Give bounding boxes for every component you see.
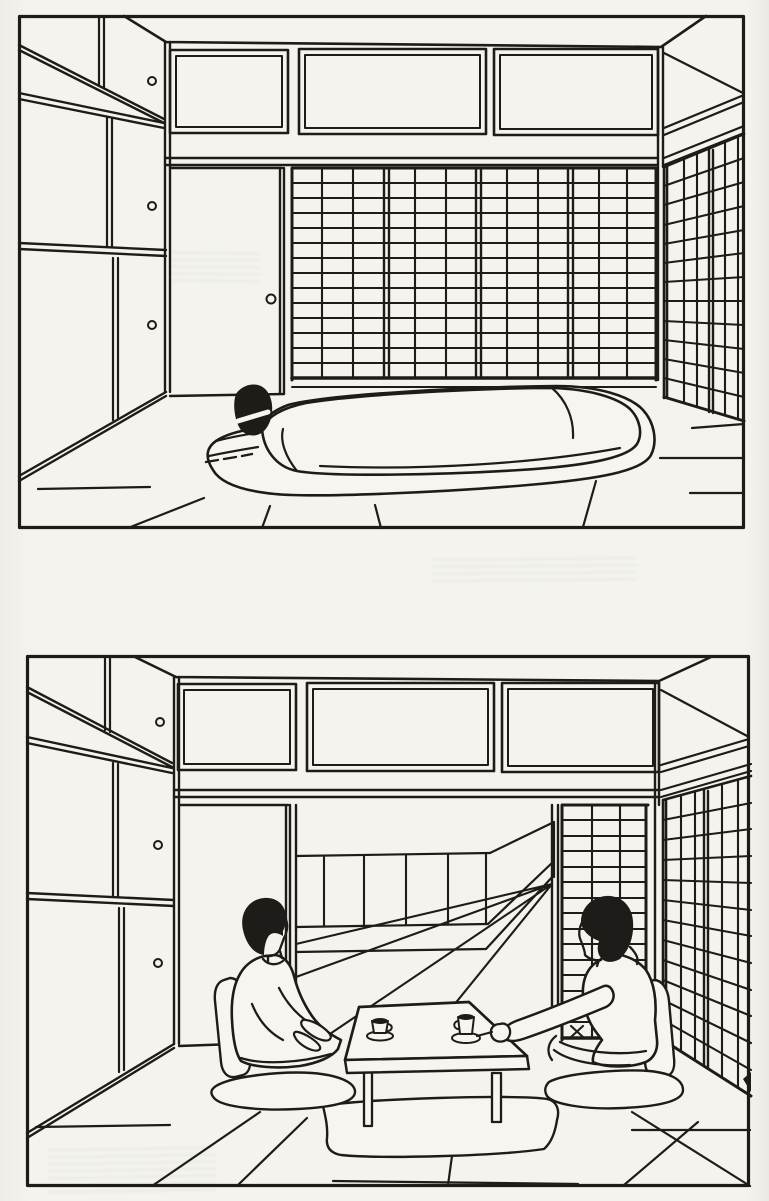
illustration-panel-night (0, 0, 769, 560)
shoji-screen-right-wall (664, 134, 744, 421)
shoji-screen-right-wall (663, 776, 751, 1096)
closet-left-wall (27, 658, 174, 1138)
closet-door-pull (156, 718, 164, 726)
illustration-panel-day (0, 640, 769, 1201)
rug (323, 1097, 558, 1157)
closet-door-pull (154, 841, 162, 849)
torso (232, 955, 341, 1067)
hair (242, 898, 286, 955)
print-bleed-artifact (170, 248, 260, 283)
floor-cushion (545, 1070, 683, 1108)
closet-door-pull (154, 959, 162, 967)
door-pull (267, 295, 276, 304)
print-bleed-artifact (48, 1145, 217, 1194)
closet-door-pull (148, 321, 156, 329)
shoji-screen-back-wall (292, 168, 656, 387)
closet-left-wall (19, 17, 166, 481)
scanned-book-page (0, 0, 769, 1201)
print-bleed-artifact (432, 552, 637, 582)
seated-person-left (211, 898, 355, 1110)
closet-door-pull (148, 77, 156, 85)
quilt (262, 388, 640, 475)
hand (491, 1024, 510, 1042)
transom-windows (174, 683, 751, 797)
futon (206, 384, 654, 495)
hair (581, 896, 633, 962)
closet-door-pull (148, 202, 156, 210)
